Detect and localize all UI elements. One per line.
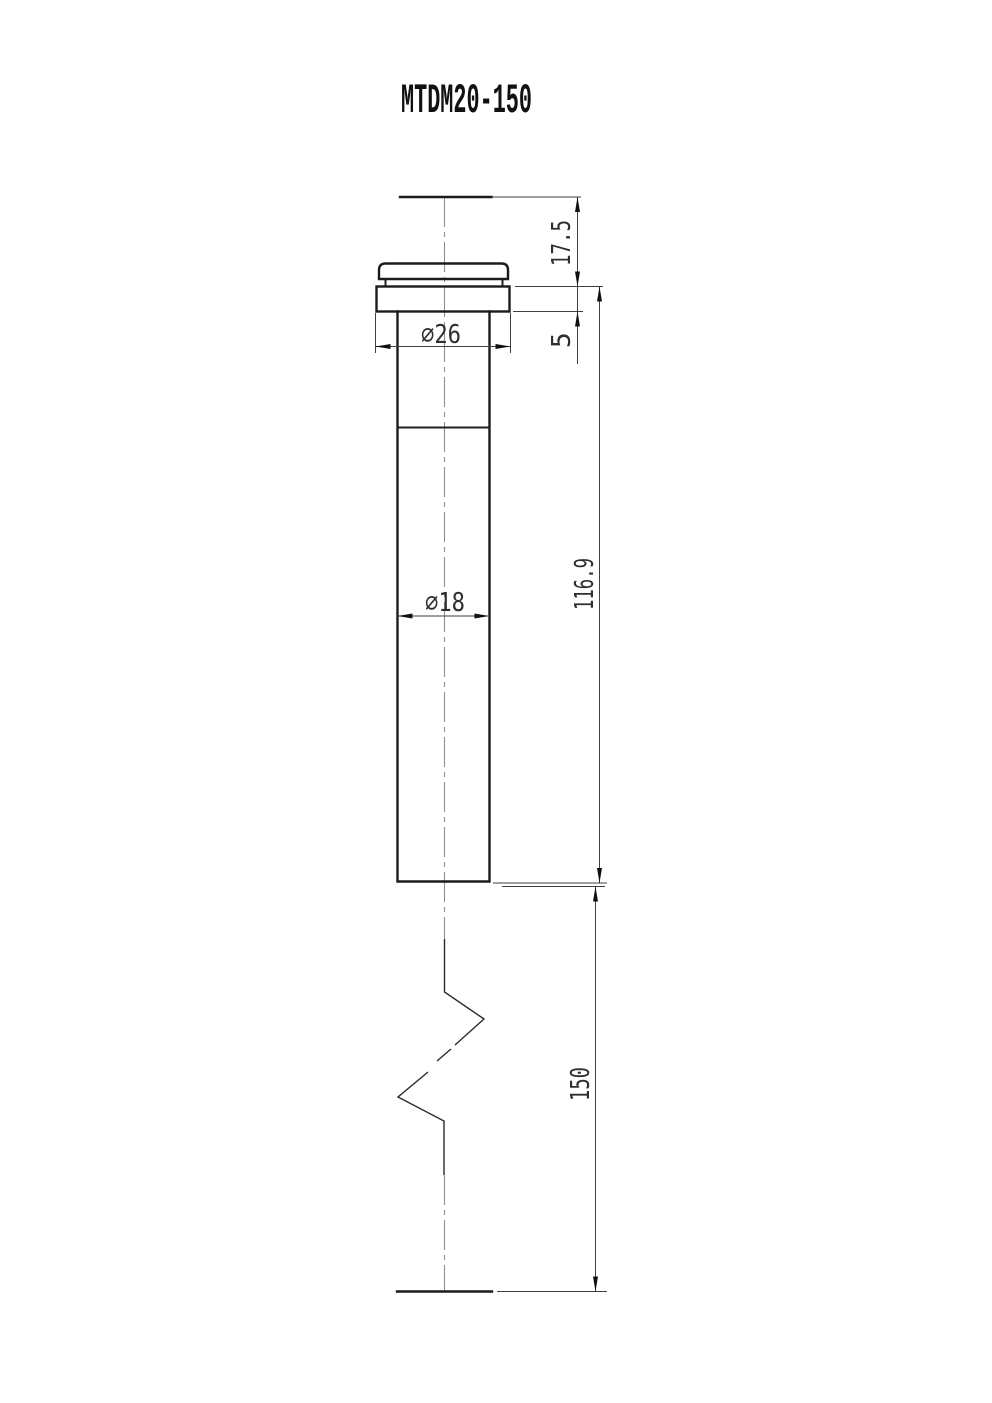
arrow-up-icon (593, 887, 598, 902)
arrow-down-icon (593, 1277, 598, 1292)
dim-flange-diameter-label: ∅26 (421, 320, 461, 350)
dim-total-length-label: 150 (566, 1067, 596, 1101)
break-zigzag-lower (398, 1072, 444, 1175)
arrow-right-icon (475, 614, 490, 619)
dim-shaft-diameter: ∅18 (398, 588, 490, 619)
arrow-left-icon (376, 344, 391, 349)
part-outline (377, 197, 510, 1292)
dim-head-height-label: 17.5 (547, 220, 577, 266)
drawing-title: MTDM20-150 (401, 77, 532, 125)
dim-shaft-diameter-label: ∅18 (425, 588, 465, 618)
dim-total-length: 150 (566, 887, 598, 1292)
arrow-up-icon (575, 312, 580, 327)
arrow-right-icon (496, 344, 511, 349)
dim-shaft-length: 116.9 (570, 287, 602, 884)
dim-flange-thickness-label: 5 (547, 332, 577, 348)
arrow-down-icon (575, 272, 580, 287)
flange (377, 287, 510, 312)
extension-lines (376, 197, 608, 1292)
break-zigzag-upper (445, 939, 485, 1045)
head-cap (379, 264, 508, 280)
arrow-left-icon (398, 614, 413, 619)
dim-flange-thickness: 5 (547, 312, 580, 349)
drawing-sheet: MTDM20-150 ∅26 (0, 0, 992, 1403)
break-zigzag-dash (437, 1049, 451, 1061)
arrow-down-icon (597, 868, 602, 883)
arrow-up-icon (597, 287, 602, 302)
arrow-up-icon (575, 197, 580, 212)
break-symbol (398, 939, 484, 1175)
dim-shaft-length-label: 116.9 (570, 558, 600, 610)
drawing-canvas: MTDM20-150 ∅26 (0, 0, 992, 1403)
